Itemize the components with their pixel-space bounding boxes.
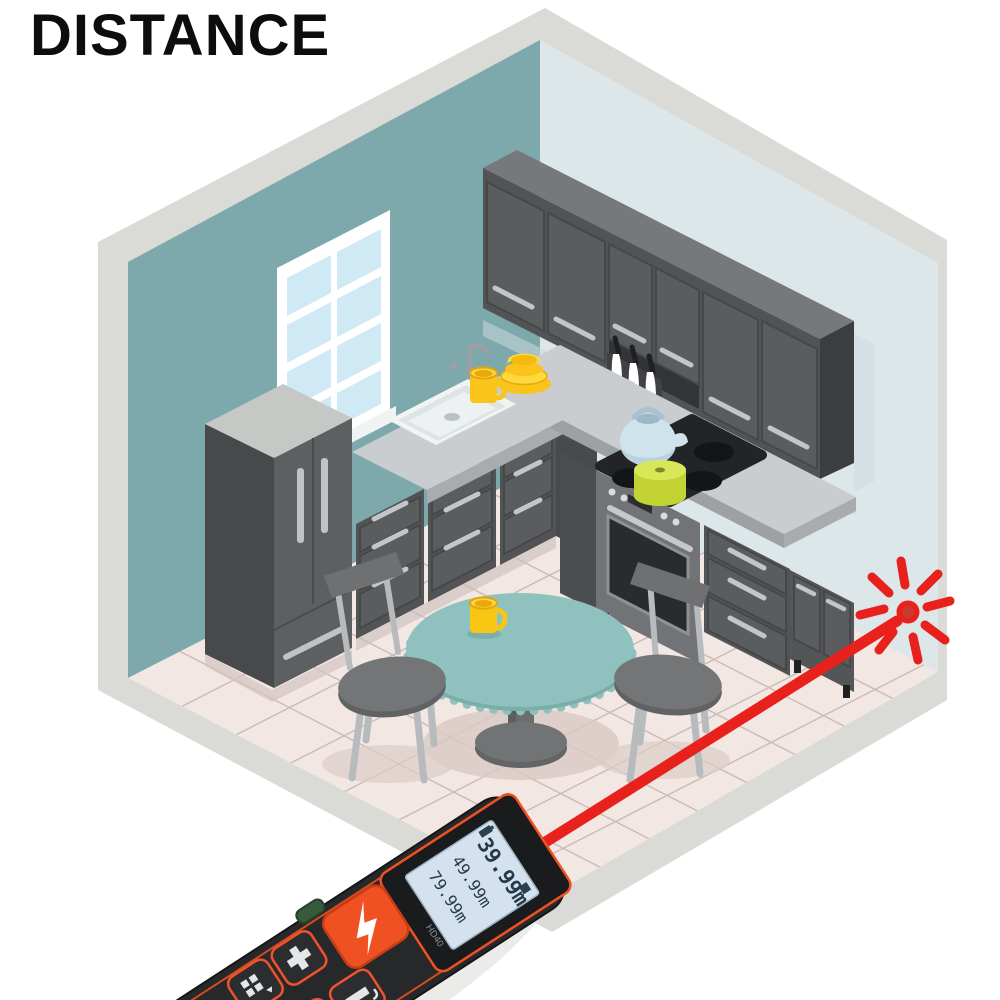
illustration-canvas: 39.99m 49.99m 79.99m HD40 bbox=[0, 0, 1000, 1000]
sink-drain bbox=[444, 413, 460, 421]
fridge-side bbox=[205, 424, 274, 688]
wall-shadow-end bbox=[854, 333, 874, 492]
refrigerator bbox=[205, 384, 352, 702]
page-title: DISTANCE bbox=[30, 2, 330, 69]
fridge-handle-left bbox=[297, 468, 304, 543]
wall-cabinet-end bbox=[820, 321, 854, 479]
kitchen-illustration: 39.99m 49.99m 79.99m HD40 bbox=[0, 0, 1000, 1000]
fridge-handle-right bbox=[321, 458, 328, 533]
green-pot bbox=[634, 460, 686, 506]
